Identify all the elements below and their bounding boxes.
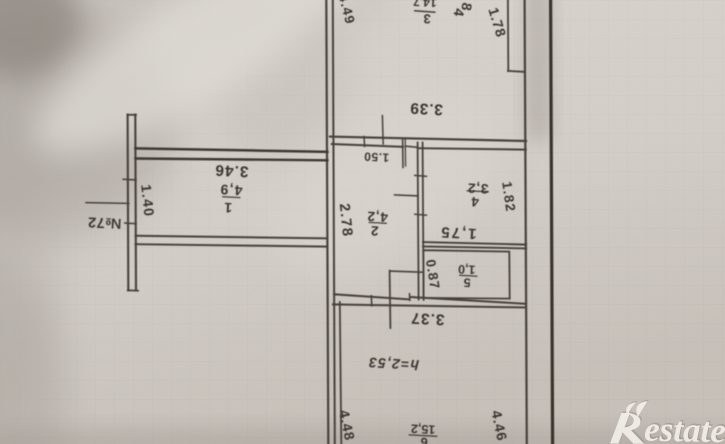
svg-text:estate: estate: [644, 410, 725, 444]
